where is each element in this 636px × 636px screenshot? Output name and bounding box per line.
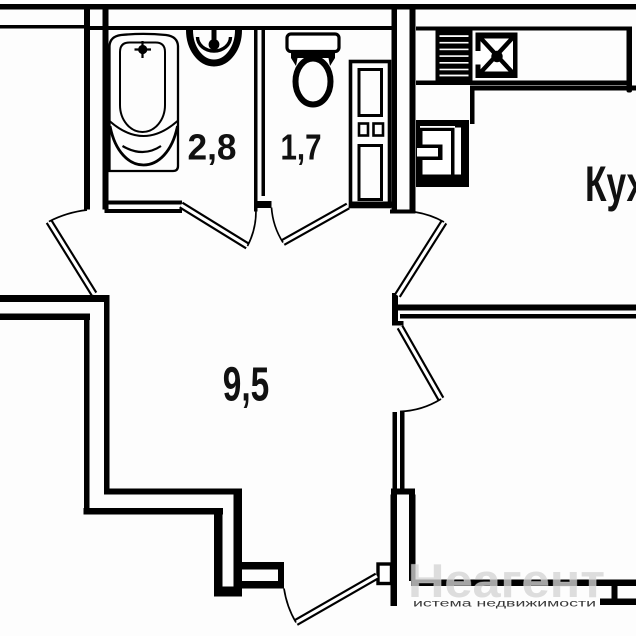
- svg-text:1,7: 1,7: [281, 127, 322, 168]
- svg-text:2,8: 2,8: [188, 127, 237, 168]
- svg-text:Кухня: Кухня: [585, 156, 636, 212]
- svg-text:истема недвижимости: истема недвижимости: [413, 599, 596, 610]
- svg-text:9,5: 9,5: [223, 359, 270, 412]
